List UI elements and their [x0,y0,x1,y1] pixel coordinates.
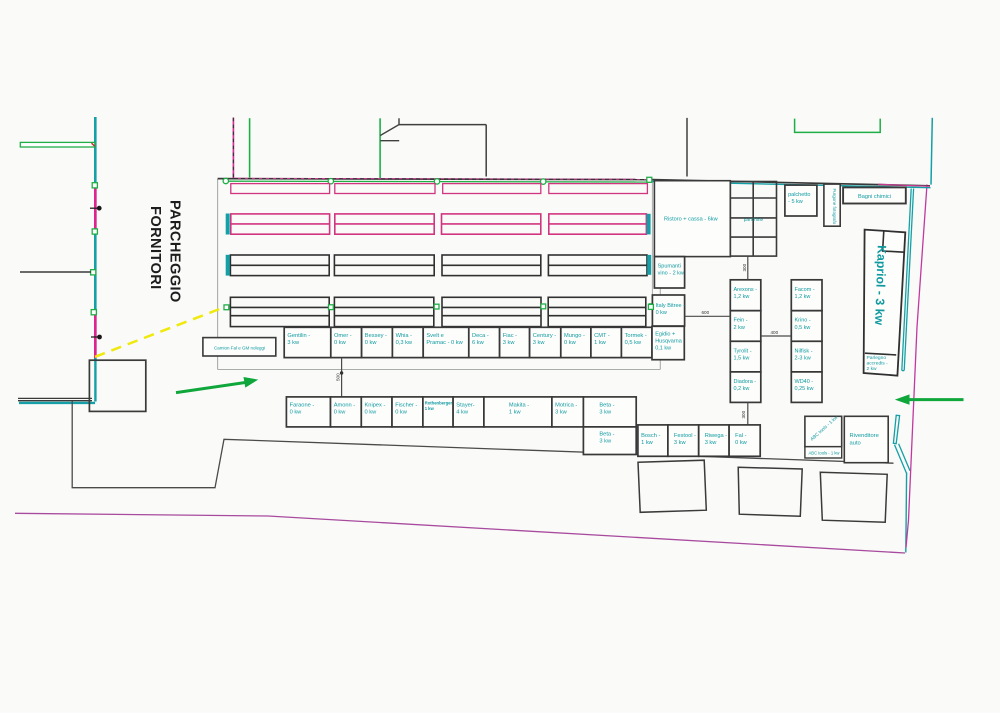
svg-text:Stayer-: Stayer- [456,402,474,408]
svg-text:0,5 kw: 0,5 kw [795,325,811,331]
svg-text:0 kw: 0 kw [656,310,667,316]
svg-text:WD40 -: WD40 - [795,379,814,385]
svg-text:Kapriol - 3 kw: Kapriol - 3 kw [872,245,889,326]
svg-text:Italy Bitree -: Italy Bitree - [656,303,686,309]
svg-text:6 kw: 6 kw [472,340,485,346]
svg-text:vino - 2 kw: vino - 2 kw [658,271,684,277]
svg-text:1,2 kw: 1,2 kw [795,294,811,300]
svg-text:1 kw: 1 kw [425,406,435,411]
svg-text:Parlegno: Parlegno [867,355,887,361]
svg-text:3 kw: 3 kw [599,410,612,416]
svg-text:Camion Fal e GM noleggi: Camion Fal e GM noleggi [214,345,265,350]
svg-text:CMT -: CMT - [594,333,610,339]
svg-text:400: 400 [771,330,779,335]
svg-text:auto: auto [850,441,861,447]
svg-text:Rivenditore: Rivenditore [850,433,879,439]
svg-text:3 kw: 3 kw [555,410,568,416]
svg-text:Gentilin -: Gentilin - [287,333,310,339]
svg-text:Furgone fotografo: Furgone fotografo [832,189,837,225]
svg-text:1,2 kw: 1,2 kw [734,294,750,300]
svg-text:0,5 kw: 0,5 kw [625,340,642,346]
svg-text:Festool -: Festool - [674,433,696,439]
svg-text:0 kw: 0 kw [290,410,303,416]
svg-text:2-3 kw: 2-3 kw [795,355,811,361]
svg-text:Fischer -: Fischer - [395,402,417,408]
svg-text:3 kw: 3 kw [674,440,687,446]
svg-text:Tormek -: Tormek - [625,333,647,339]
svg-text:Egidio +: Egidio + [655,331,675,337]
svg-text:1 kw: 1 kw [594,340,607,346]
svg-text:Fal -: Fal - [735,433,746,439]
svg-text:panchine: panchine [744,217,764,223]
svg-text:0,3 kw: 0,3 kw [396,340,413,346]
svg-text:3 kw: 3 kw [503,340,516,346]
svg-text:0 kw: 0 kw [334,410,347,416]
svg-text:Diadora -: Diadora - [734,379,757,385]
svg-text:Rothenberger -: Rothenberger - [425,400,456,405]
svg-text:1,5 kw: 1,5 kw [734,355,750,361]
svg-text:PARCHEGGIO: PARCHEGGIO [167,200,183,303]
svg-text:Krino -: Krino - [795,318,811,324]
svg-text:- 5 kw: - 5 kw [788,199,803,205]
svg-text:0 kw: 0 kw [564,340,577,346]
svg-text:Makita -: Makita - [509,402,529,408]
svg-text:Motrica -: Motrica - [555,402,577,408]
svg-text:Arexons -: Arexons - [734,287,758,293]
svg-text:Knipex -: Knipex - [365,402,386,408]
svg-text:1 kw: 1 kw [509,410,522,416]
svg-text:0 kw: 0 kw [735,440,748,446]
svg-text:Fiac -: Fiac - [503,333,517,339]
svg-text:0 kw: 0 kw [365,410,378,416]
svg-text:accredis -: accredis - [867,360,889,366]
svg-text:Bessey -: Bessey - [365,333,387,339]
svg-text:Beta -: Beta - [599,402,614,408]
svg-text:Beta -: Beta - [599,431,614,437]
svg-text:ABC tools - 1 kw: ABC tools - 1 kw [809,451,841,456]
svg-text:Fein -: Fein - [734,318,748,324]
svg-text:0 kw: 0 kw [395,410,408,416]
svg-text:Tyrolit -: Tyrolit - [734,348,752,354]
svg-text:Nilfisk -: Nilfisk - [795,348,813,354]
svg-text:Bosch -: Bosch - [641,433,660,439]
svg-text:0,25 kw: 0,25 kw [795,386,814,392]
svg-text:2 kw: 2 kw [734,325,745,331]
svg-text:2 kw: 2 kw [867,366,878,372]
svg-text:600: 600 [702,310,710,315]
svg-text:Spumanti: Spumanti [658,264,681,270]
svg-text:0,2 kw: 0,2 kw [734,386,750,392]
svg-text:Century -: Century - [533,333,556,339]
svg-text:palchetto: palchetto [788,192,810,198]
svg-text:500: 500 [336,373,341,381]
svg-text:3 kw: 3 kw [287,340,300,346]
svg-text:0 kw: 0 kw [334,340,347,346]
svg-text:0,1 kw: 0,1 kw [655,346,671,352]
svg-text:Omer -: Omer - [334,333,352,339]
svg-text:300: 300 [741,410,746,418]
svg-text:300: 300 [742,263,747,271]
svg-text:Svelt e: Svelt e [426,333,443,339]
svg-text:Pramac - 0 kw: Pramac - 0 kw [426,340,463,346]
svg-text:Deca -: Deca - [472,333,489,339]
svg-text:Ristoro + cassa - 6kw: Ristoro + cassa - 6kw [664,217,719,223]
svg-text:0 kw: 0 kw [365,340,378,346]
svg-text:1 kw: 1 kw [641,440,654,446]
svg-text:Amonn -: Amonn - [334,402,356,408]
svg-text:3 kw: 3 kw [533,340,546,346]
svg-text:FORNITORI: FORNITORI [147,206,163,290]
svg-text:Mungo -: Mungo - [564,333,585,339]
svg-text:Whia -: Whia - [396,333,413,339]
svg-text:Bagni chimici: Bagni chimici [858,194,891,200]
svg-text:Husqvarna: Husqvarna [655,338,683,344]
svg-text:Facom -: Facom - [795,287,815,293]
svg-text:4 kw: 4 kw [456,410,469,416]
svg-text:3 kw: 3 kw [599,439,612,445]
svg-text:Faraone -: Faraone - [290,402,315,408]
svg-text:Riwega -: Riwega - [705,433,728,439]
svg-text:3 kw: 3 kw [705,440,718,446]
